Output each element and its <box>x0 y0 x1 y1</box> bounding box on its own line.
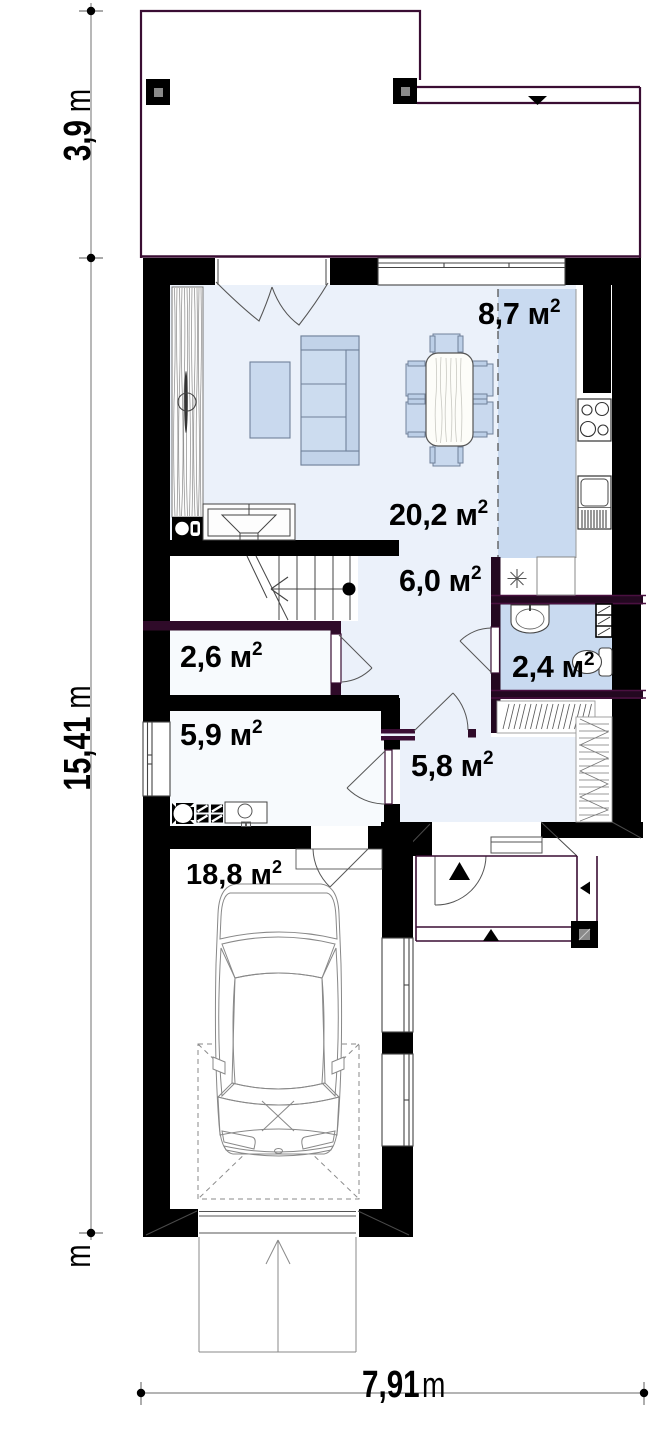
svg-text:5,9 м2: 5,9 м2 <box>180 717 262 752</box>
svg-text:m: m <box>58 1244 98 1267</box>
svg-text:2,6 м2: 2,6 м2 <box>180 639 262 674</box>
svg-text:6,0 м2: 6,0 м2 <box>399 563 481 598</box>
svg-text:2,4 м2: 2,4 м2 <box>512 649 594 684</box>
svg-text:3,9 m: 3,9 m <box>57 89 99 161</box>
svg-text:8,7 м2: 8,7 м2 <box>478 296 560 331</box>
svg-text:7,91m: 7,91m <box>362 1364 445 1406</box>
svg-text:20,2 м2: 20,2 м2 <box>389 497 488 532</box>
svg-text:18,8 м2: 18,8 м2 <box>186 857 282 891</box>
svg-text:5,8 м2: 5,8 м2 <box>411 748 493 783</box>
svg-text:15,41 m: 15,41 m <box>57 685 99 790</box>
